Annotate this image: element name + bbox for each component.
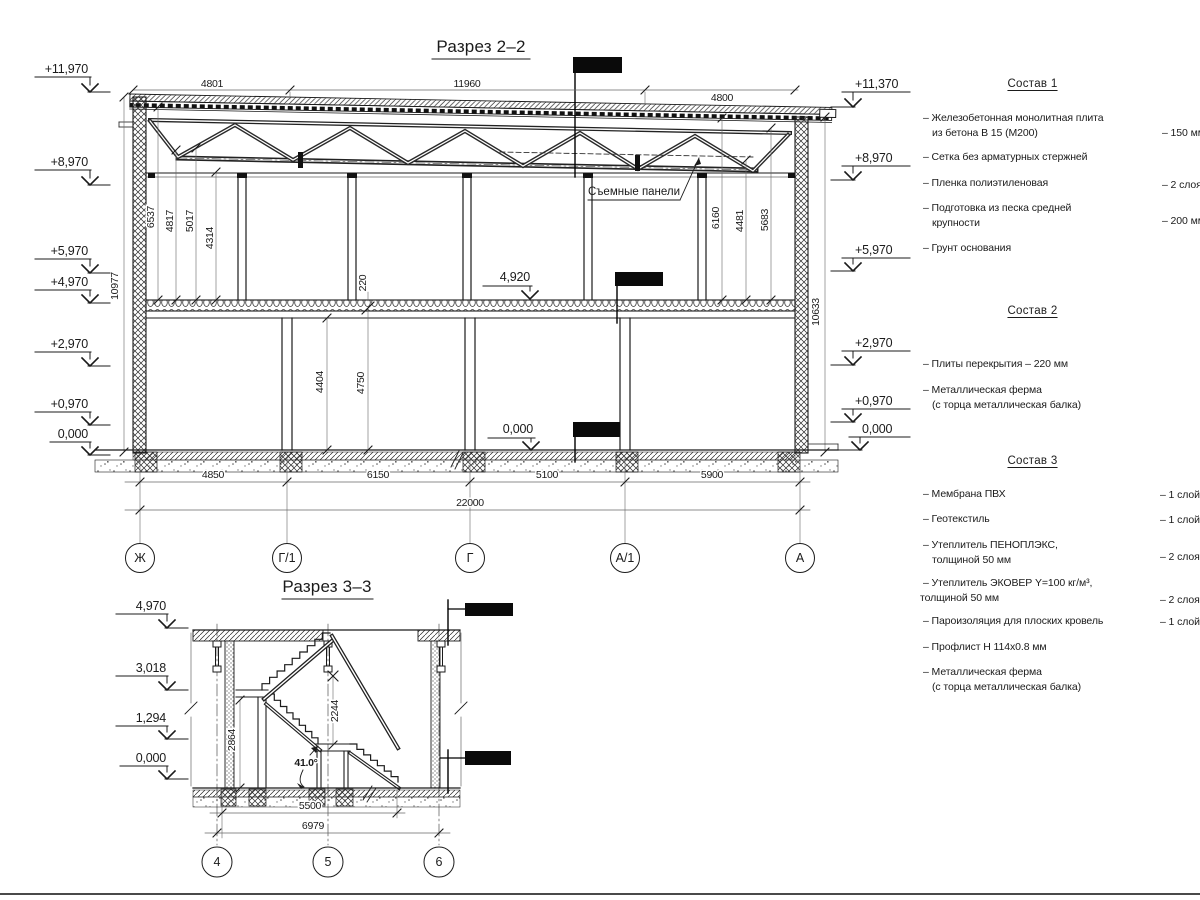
svg-text:+8,970: +8,970 xyxy=(855,151,893,165)
ground-slab xyxy=(95,444,838,472)
svg-text:4,970: 4,970 xyxy=(136,599,167,613)
upper-dim-lines-left xyxy=(158,107,216,300)
dim-4800: 4800 xyxy=(711,92,734,104)
axis-a: А xyxy=(796,551,805,565)
comp2-item1: – Плиты перекрытия – 220 мм xyxy=(923,358,1068,370)
comp1-item3-value: – 2 слоя xyxy=(1162,179,1200,191)
dim-5100: 5100 xyxy=(536,469,559,481)
svg-text:0,000: 0,000 xyxy=(58,427,89,441)
comp1-item5: – Грунт основания xyxy=(923,242,1011,254)
dim-4850: 4850 xyxy=(202,469,225,481)
axis-6: 6 xyxy=(436,855,443,869)
svg-text:0,000: 0,000 xyxy=(862,422,893,436)
comp2-item2-line1: – Металлическая ферма xyxy=(923,384,1042,396)
dim-4817: 4817 xyxy=(164,209,176,232)
dim-10977: 10977 xyxy=(109,272,121,300)
dim-4481: 4481 xyxy=(734,209,746,232)
comp3-item3-line2: толщиной 50 мм xyxy=(932,554,1011,566)
stair-elevation-marks: 4,970 3,018 1,294 0,000 xyxy=(116,599,188,779)
stair-ground-slab xyxy=(193,786,460,807)
svg-text:+2,970: +2,970 xyxy=(855,336,893,350)
dim-4750: 4750 xyxy=(355,371,367,394)
dim-6537: 6537 xyxy=(145,205,157,228)
dim-5017: 5017 xyxy=(184,209,196,232)
section-2-2: Разрез 2–2 Съемные панели xyxy=(35,37,910,573)
comp3-item3-line1: – Утеплитель ПЕНОПЛЭКС, xyxy=(923,539,1058,551)
comp1-item2: – Сетка без арматурных стержней xyxy=(923,151,1087,163)
dim-4314: 4314 xyxy=(204,226,216,249)
svg-text:0,000: 0,000 xyxy=(136,751,167,765)
svg-text:4,920: 4,920 xyxy=(500,270,531,284)
dim-angle: 41.0° xyxy=(294,757,317,769)
dim-6979: 6979 xyxy=(302,820,325,832)
comp2-item2-line2: (с торца металлическая балка) xyxy=(932,399,1081,411)
axis-bubbles-2-2: Ж Г/1 Г А/1 А xyxy=(126,544,815,573)
svg-text:0,000: 0,000 xyxy=(503,422,534,436)
svg-text:+5,970: +5,970 xyxy=(855,243,893,257)
axis-zh: Ж xyxy=(134,551,146,565)
axis-g1: Г/1 xyxy=(278,551,295,565)
axis-lines-3-3 xyxy=(217,624,439,845)
comp3-item1: – Мембрана ПВХ xyxy=(923,488,1006,500)
comp1-item1-value: – 150 мм xyxy=(1162,127,1200,139)
elevation-mark-0000-floor: 0,000 xyxy=(488,422,539,450)
comp3-title: Состав 3 xyxy=(985,455,1080,467)
drawing-sheet: Разрез 2–2 Съемные панели xyxy=(0,0,1200,900)
roof-end-cap xyxy=(820,109,836,117)
comp3-item5-value: – 1 слой xyxy=(1160,616,1200,628)
svg-text:+0,970: +0,970 xyxy=(51,397,89,411)
dim-10633: 10633 xyxy=(810,298,822,326)
elevation-mark-4920: 4,920 xyxy=(483,270,538,299)
comp3-item4-value: – 2 слоя xyxy=(1160,594,1200,606)
dim-5683: 5683 xyxy=(759,208,771,231)
chord-splice xyxy=(635,155,640,171)
redaction-box xyxy=(573,57,622,73)
stair-right-wall xyxy=(431,641,440,788)
svg-text:+5,970: +5,970 xyxy=(51,244,89,258)
comp3-item4-line2: толщиной 50 мм xyxy=(920,592,999,604)
dim-4404: 4404 xyxy=(314,370,326,393)
comp3-item2: – Геотекстиль xyxy=(923,513,990,525)
svg-text:+11,970: +11,970 xyxy=(45,62,88,76)
redaction-box xyxy=(465,751,511,765)
dim-5900: 5900 xyxy=(701,469,724,481)
column-caps xyxy=(148,173,795,178)
comp3-item6: – Профлист Н 114х0.8 мм xyxy=(923,641,1047,653)
comp1-item1-line1: – Железобетонная монолитная плита xyxy=(923,112,1103,124)
comp3-item2-value: – 1 слой xyxy=(1160,514,1200,526)
floor-slab xyxy=(146,300,795,311)
svg-text:3,018: 3,018 xyxy=(136,661,167,675)
comp1-item4-line1: – Подготовка из песка средней xyxy=(923,202,1071,214)
svg-text:+2,970: +2,970 xyxy=(51,337,89,351)
redaction-box xyxy=(465,603,513,616)
comp3-item7-line1: – Металлическая ферма xyxy=(923,666,1042,678)
comp3-item5: – Пароизоляция для плоских кровель xyxy=(923,615,1103,627)
comp2-title: Состав 2 xyxy=(985,305,1080,317)
svg-text:+8,970: +8,970 xyxy=(51,155,89,169)
redaction-box xyxy=(615,272,663,286)
dim-5500: 5500 xyxy=(299,800,322,812)
left-elevation-marks: +11,970 +8,970 +5,970 +4,970 +2,970 +0,9… xyxy=(35,62,110,455)
axis-bubbles-3-3: 4 5 6 xyxy=(202,847,454,877)
dim-4801: 4801 xyxy=(201,78,224,90)
section-3-3-title: Разрез 3–3 xyxy=(282,577,371,596)
right-elevation-marks: +11,370 +8,970 +5,970 +2,970 +0,970 0,00… xyxy=(831,77,910,450)
svg-text:+11,370: +11,370 xyxy=(855,77,898,91)
dim-22000: 22000 xyxy=(456,497,484,509)
panels-label: Съемные панели xyxy=(588,186,680,198)
axis-g: Г xyxy=(467,551,474,565)
comp3-item4-line1: – Утеплитель ЭКОВЕР Y=100 кг/м³, xyxy=(923,577,1092,589)
comp1-item1-line2: из бетона В 15 (М200) xyxy=(932,127,1038,139)
redaction-box xyxy=(573,422,620,437)
section-2-2-title: Разрез 2–2 xyxy=(436,37,525,56)
section-3-3: Разрез 3–3 xyxy=(116,577,513,877)
comp1-title: Состав 1 xyxy=(985,78,1080,90)
dim-220: 220 xyxy=(357,274,369,291)
axis-4: 4 xyxy=(214,855,221,869)
svg-text:1,294: 1,294 xyxy=(136,711,167,725)
right-wall xyxy=(795,117,808,453)
axis-a1: А/1 xyxy=(616,551,635,565)
comp3-item7-line2: (с торца металлическая балка) xyxy=(932,681,1081,693)
dim-6150: 6150 xyxy=(367,469,390,481)
comp1-item4-value: – 200 мм xyxy=(1162,215,1200,227)
dim-2864: 2864 xyxy=(226,728,238,751)
dim-2244: 2244 xyxy=(329,699,341,722)
dim-6160: 6160 xyxy=(710,206,722,229)
dim-11960: 11960 xyxy=(454,78,481,90)
chord-splice xyxy=(298,152,303,168)
left-wall xyxy=(133,97,146,453)
angle-callout: 41.0° xyxy=(294,746,318,789)
svg-text:+4,970: +4,970 xyxy=(51,275,89,289)
axis-5: 5 xyxy=(325,855,332,869)
comp3-item1-value: – 1 слой xyxy=(1160,489,1200,501)
steel-truss xyxy=(150,120,790,171)
svg-text:+0,970: +0,970 xyxy=(855,394,893,408)
stair-left-wall xyxy=(225,641,234,788)
comp1-item4-line2: крупности xyxy=(932,217,980,229)
comp3-item3-value: – 2 слоя xyxy=(1160,551,1200,563)
comp1-item3: – Пленка полиэтиленовая xyxy=(923,177,1048,189)
